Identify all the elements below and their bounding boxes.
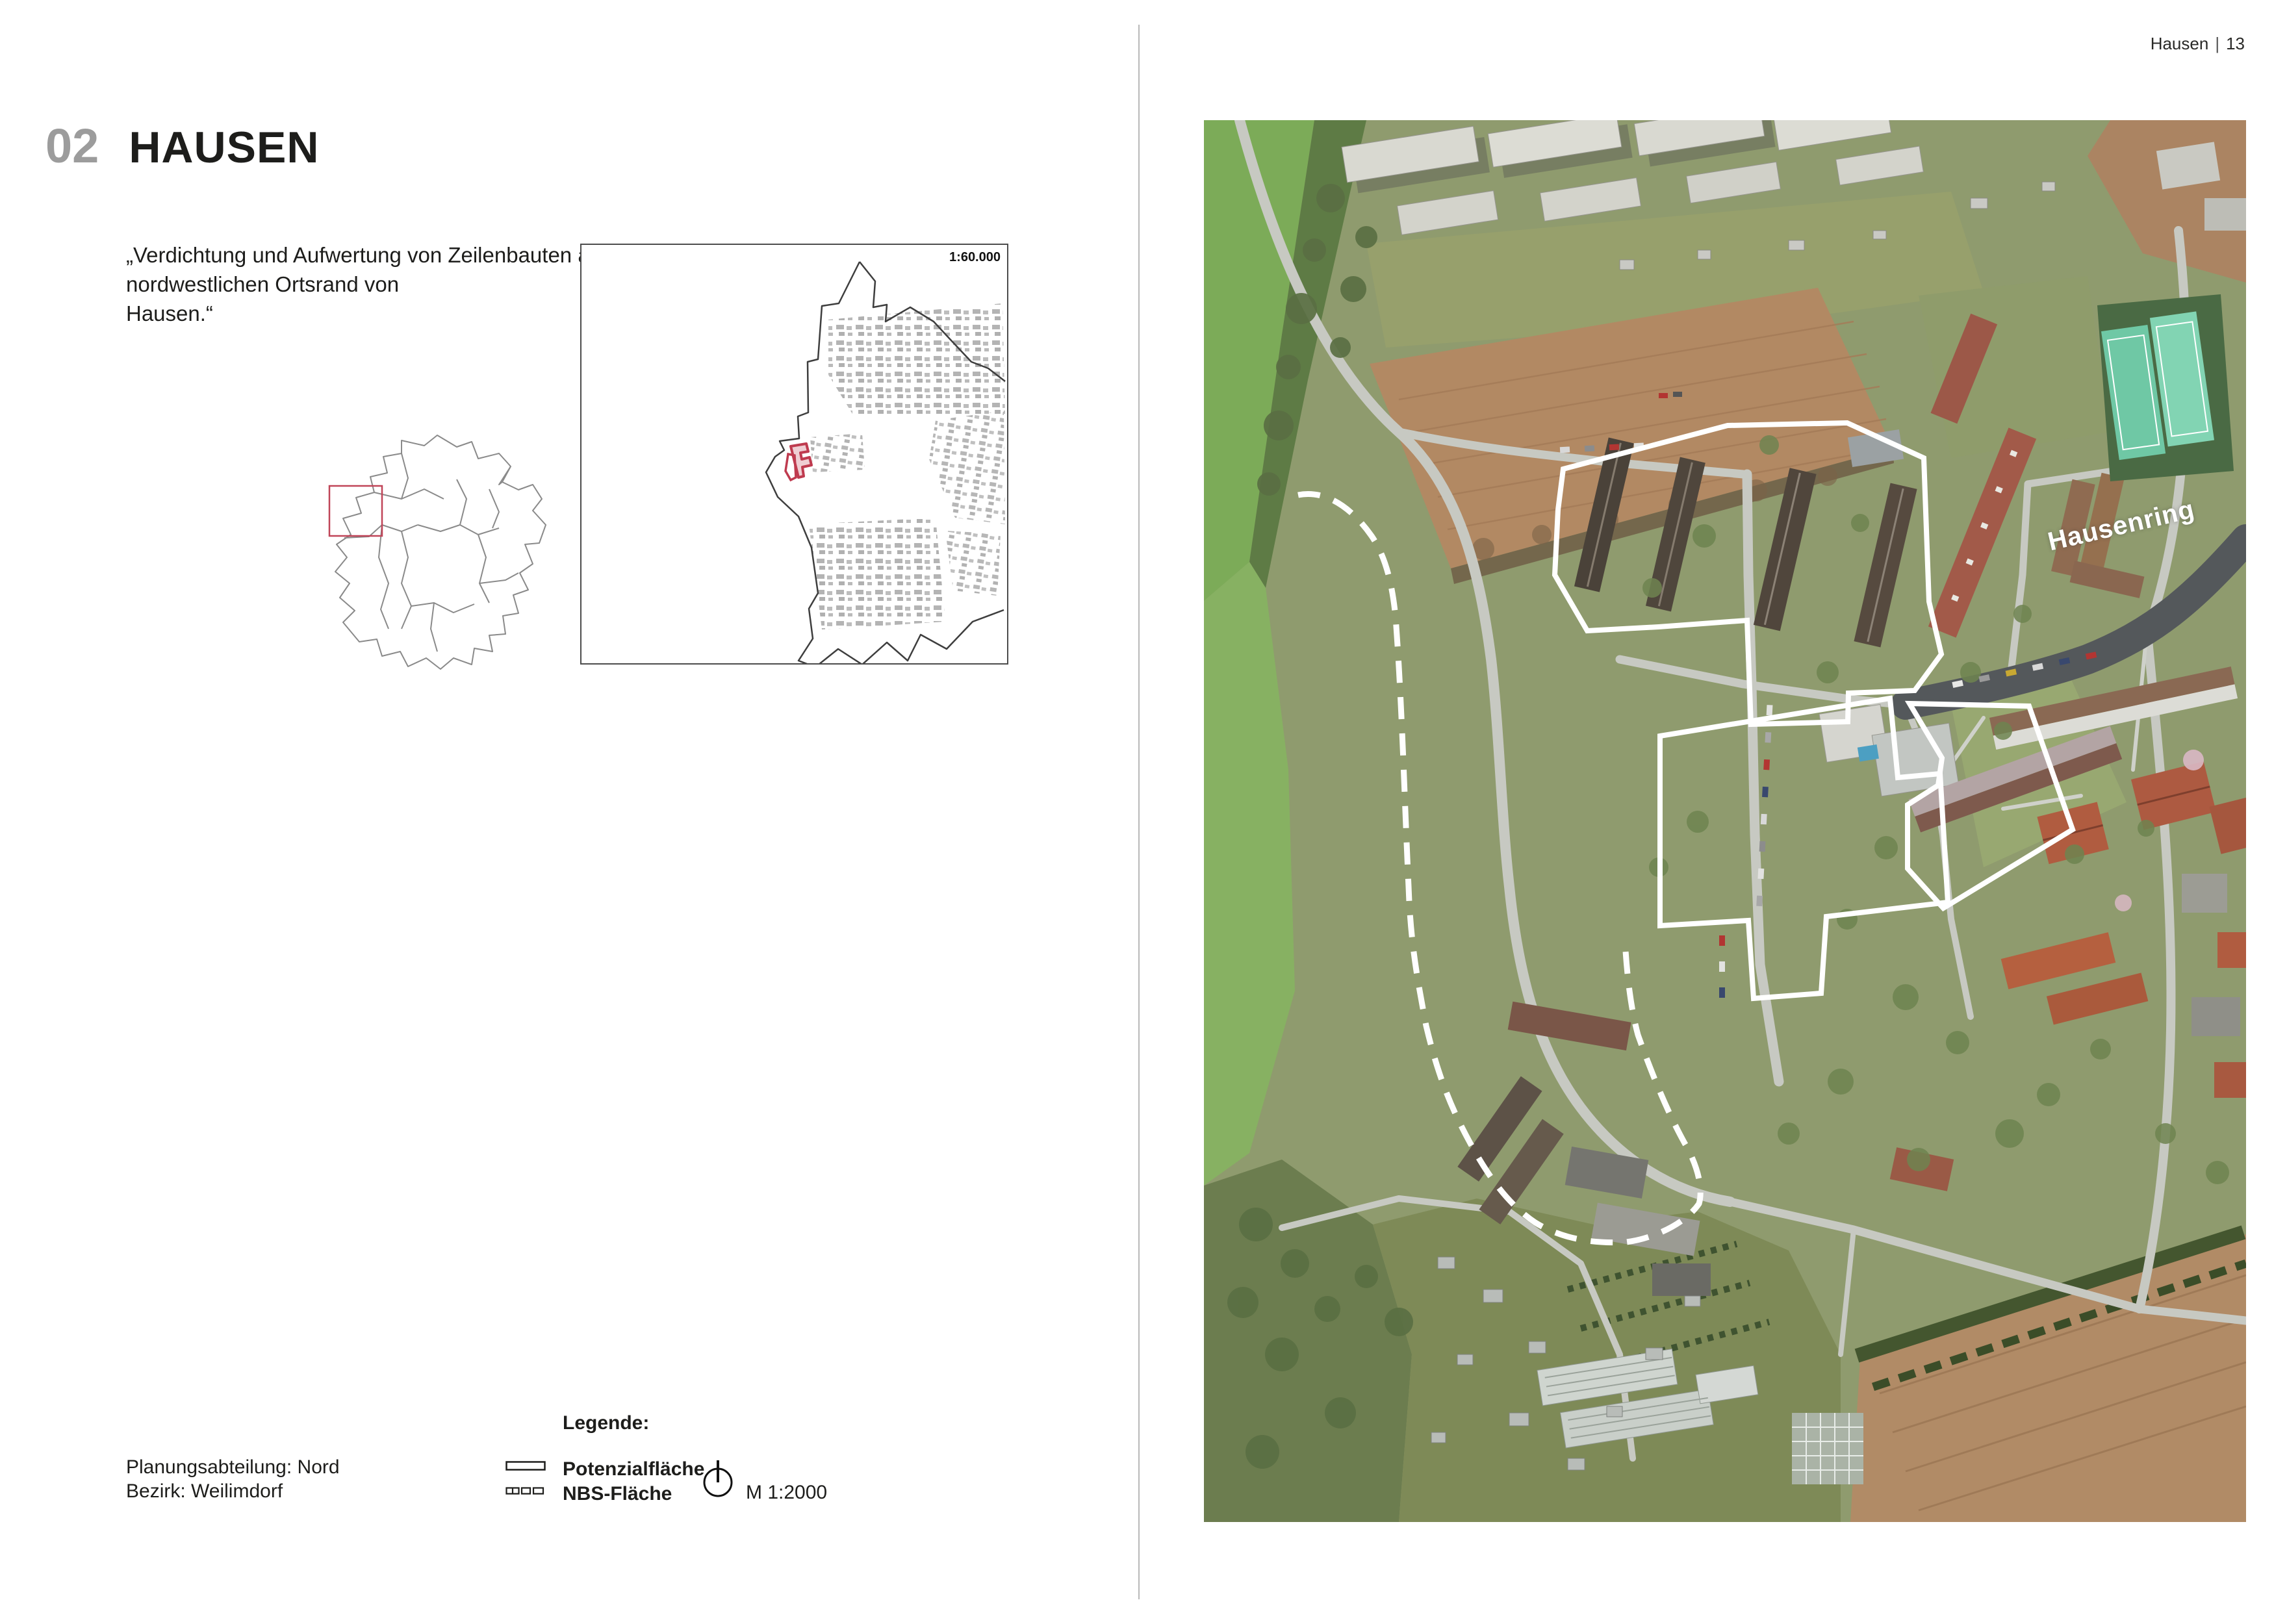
project-quote: „Verdichtung und Aufwertung von Zeilenba…	[126, 240, 437, 328]
aerial-scale-label: M 1:2000	[746, 1480, 827, 1504]
cold-frames	[1792, 1413, 1863, 1484]
project-site-outline-2	[786, 454, 796, 480]
footer-meta: Planungsabteilung: Nord Bezirk: Weilimdo…	[126, 1455, 340, 1503]
page-header: Hausen|13	[2151, 34, 2245, 54]
footer-district: Bezirk: Weilimdorf	[126, 1479, 340, 1503]
buildings-cluster-southeast	[945, 531, 1001, 596]
page-divider	[1138, 25, 1140, 1599]
dashed-rect-icon	[505, 1486, 546, 1499]
district-overview-map	[304, 426, 563, 677]
buildings-cluster-northeast	[828, 303, 1005, 417]
buildings-cluster-center	[810, 433, 865, 472]
header-page-number: 13	[2226, 34, 2245, 53]
chapter-number: 02	[45, 122, 99, 170]
city-map-svg	[581, 245, 1007, 663]
map-scale-badge: 1:60.000	[949, 250, 1001, 265]
legend-item-nbs-flaeche: NBS-Fläche	[563, 1482, 672, 1506]
quote-line-1: „Verdichtung und Aufwertung von Zeilenba…	[126, 240, 437, 270]
buildings-cluster-south	[809, 518, 945, 629]
tennis-courts	[2097, 294, 2234, 481]
city-map: 1:60.000	[580, 244, 1008, 665]
district-highlight-rect	[329, 486, 382, 536]
document-page-spread: 02 HAUSEN „Verdichtung und Aufwertung vo…	[0, 0, 2274, 1624]
page-title: HAUSEN	[129, 125, 319, 170]
aerial-photo-svg	[1204, 120, 2246, 1522]
legend-heading: Legende:	[563, 1411, 649, 1435]
header-separator: |	[2208, 34, 2226, 53]
north-arrow-icon	[700, 1455, 735, 1503]
footer-department: Planungsabteilung: Nord	[126, 1455, 340, 1479]
quote-line-2: nordwestlichen Ortsrand von Hausen.“	[126, 270, 437, 328]
district-overview-map-svg	[304, 426, 563, 677]
legend-item-potenzialflaeche: Potenzialfläche	[563, 1457, 704, 1481]
solid-rect-icon	[505, 1461, 546, 1475]
aerial-photo: Hausenring	[1204, 120, 2246, 1522]
header-section: Hausen	[2151, 34, 2209, 53]
chapter-heading: 02 HAUSEN	[45, 122, 319, 170]
buildings-cluster-east	[929, 411, 1005, 524]
